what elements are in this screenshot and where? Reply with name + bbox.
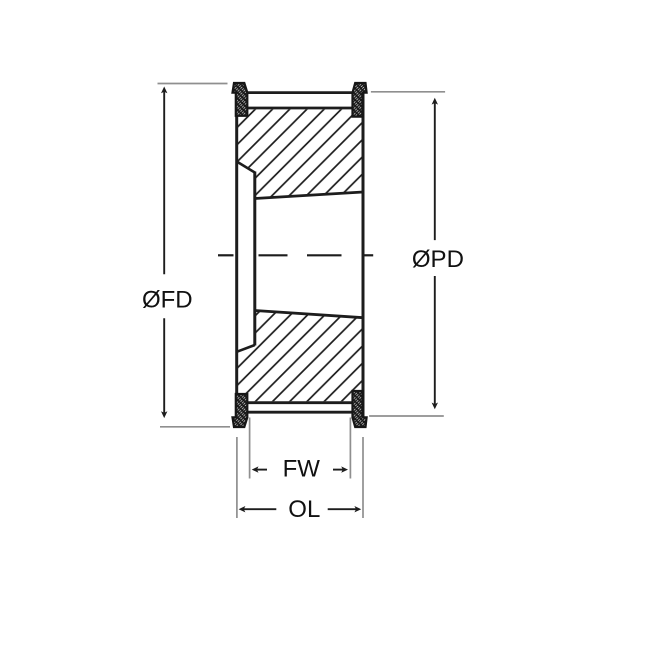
svg-text:ØPD: ØPD: [412, 246, 464, 273]
svg-text:FW: FW: [283, 455, 321, 482]
svg-text:ØFD: ØFD: [142, 287, 193, 314]
svg-text:OL: OL: [288, 496, 320, 523]
